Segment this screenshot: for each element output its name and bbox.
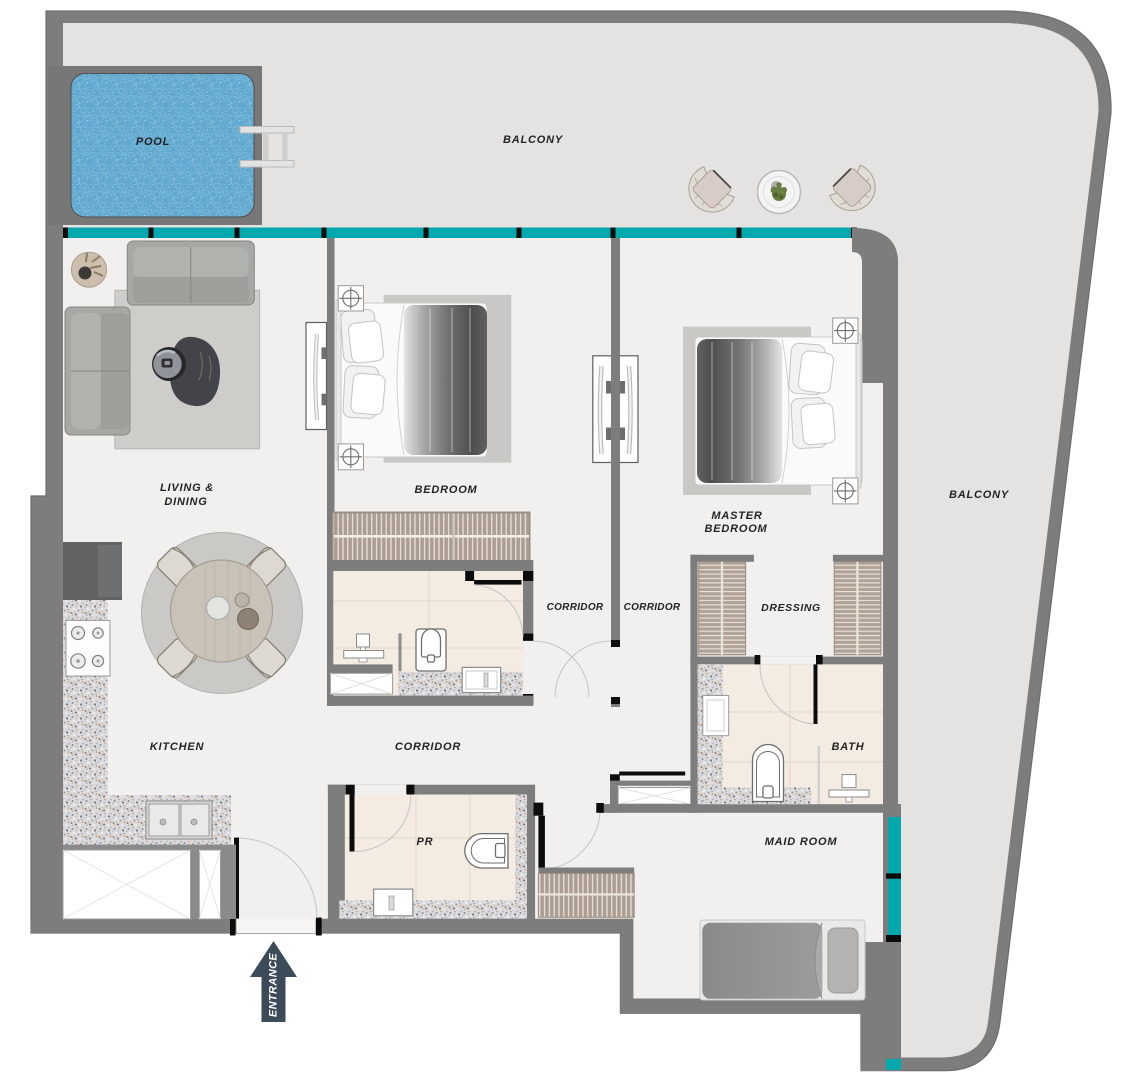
svg-text:KITCHEN: KITCHEN <box>150 741 205 753</box>
svg-text:POOL: POOL <box>136 136 170 148</box>
svg-text:BATH: BATH <box>832 741 865 753</box>
svg-text:CORRIDOR: CORRIDOR <box>624 602 681 613</box>
svg-text:BEDROOM: BEDROOM <box>704 523 767 535</box>
svg-text:BALCONY: BALCONY <box>503 134 564 146</box>
svg-text:MASTER: MASTER <box>711 510 762 522</box>
svg-text:CORRIDOR: CORRIDOR <box>395 741 461 753</box>
svg-text:DRESSING: DRESSING <box>761 602 821 614</box>
svg-text:DINING: DINING <box>164 496 207 508</box>
svg-text:PR: PR <box>417 836 434 848</box>
svg-text:CORRIDOR: CORRIDOR <box>547 602 604 613</box>
svg-text:BALCONY: BALCONY <box>949 489 1010 501</box>
svg-text:ENTRANCE: ENTRANCE <box>267 953 279 1018</box>
svg-text:BEDROOM: BEDROOM <box>414 484 477 496</box>
svg-text:MAID ROOM: MAID ROOM <box>765 836 838 848</box>
svg-text:LIVING &: LIVING & <box>160 482 214 494</box>
